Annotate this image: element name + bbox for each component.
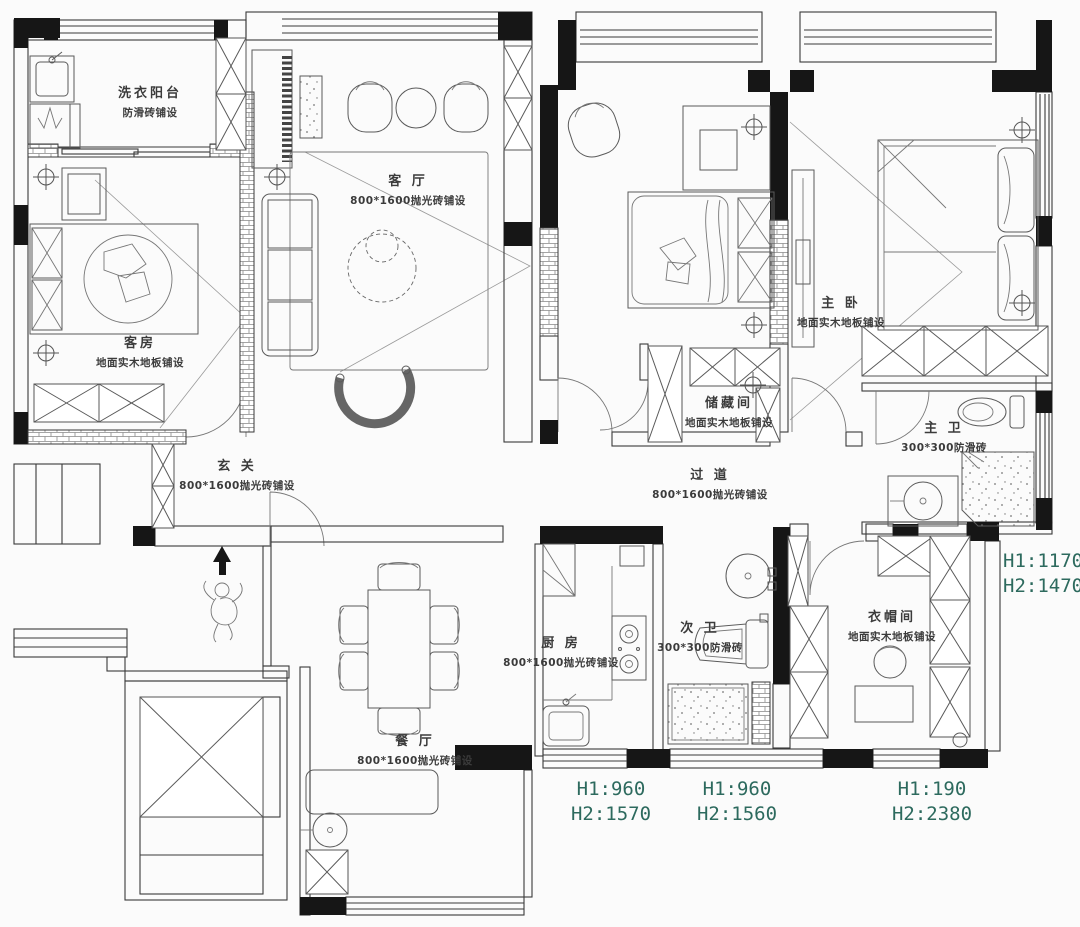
dim-line: H1:1170 — [1003, 549, 1080, 574]
room-name: 储藏间 — [685, 392, 773, 411]
label-master-bedroom: 主 卧 地面实木地板铺设 — [797, 292, 885, 330]
bedroom2-chair — [563, 97, 625, 162]
room-name: 衣帽间 — [848, 606, 936, 625]
bedroom2-bed — [628, 192, 774, 308]
room-spec: 地面实木地板铺设 — [848, 629, 936, 644]
north-arrow-icon — [213, 546, 231, 575]
dining-cabinet — [306, 850, 348, 894]
piano — [252, 50, 292, 168]
bedroom2-desk — [683, 106, 770, 190]
room-name: 玄 关 — [179, 455, 295, 474]
label-guest-room: 客房 地面实木地板铺设 — [96, 332, 184, 370]
master-vanity — [888, 476, 958, 526]
cloak-stool — [874, 646, 906, 678]
living-cabinet — [504, 46, 532, 150]
label-living-room: 客 厅 800*1600抛光砖铺设 — [350, 170, 466, 208]
room-name: 过 道 — [652, 464, 768, 483]
washing-machine — [30, 104, 80, 148]
room-name: 客 厅 — [350, 170, 466, 189]
person-figure-icon — [204, 581, 242, 642]
room-spec: 800*1600抛光砖铺设 — [179, 478, 295, 493]
lounge-chair — [336, 366, 411, 424]
room-spec: 300*300防滑砖 — [657, 640, 743, 655]
label-storage-room: 储藏间 地面实木地板铺设 — [685, 392, 773, 430]
dim-cloak-window: H1:190 H2:2380 — [892, 777, 972, 827]
coffee-table — [348, 230, 416, 302]
room-spec: 防滑砖铺设 — [118, 105, 182, 120]
room-spec: 800*1600抛光砖铺设 — [350, 193, 466, 208]
side-table — [396, 88, 436, 128]
room-spec: 地面实木地板铺设 — [797, 315, 885, 330]
dim-line: H1:190 — [892, 777, 972, 802]
kitchen-sink — [543, 694, 589, 746]
label-corridor: 过 道 800*1600抛光砖铺设 — [652, 464, 768, 502]
balcony-sink — [30, 52, 74, 102]
bath2-sink — [726, 554, 776, 598]
dim-line: H1:960 — [697, 777, 777, 802]
room-name: 次 卫 — [657, 617, 743, 636]
label-master-bathroom: 主 卫 300*300防滑砖 — [901, 417, 987, 455]
label-dining-room: 餐 厅 800*1600抛光砖铺设 — [357, 730, 473, 768]
master-wardrobe — [862, 326, 1048, 376]
dim-line: H2:1470 — [1003, 574, 1080, 599]
master-shower — [962, 452, 1034, 526]
room-spec: 地面实木地板铺设 — [685, 415, 773, 430]
guest-wardrobe — [34, 384, 164, 422]
sight-lines — [95, 122, 962, 428]
floor-plan: 洗衣阳台 防滑砖铺设 客 厅 800*1600抛光砖铺设 客房 地面实木地板铺设… — [0, 0, 1080, 927]
room-name: 厨 房 — [503, 632, 619, 651]
label-kitchen: 厨 房 800*1600抛光砖铺设 — [503, 632, 619, 670]
elevator-shaft — [140, 697, 263, 817]
balcony-cabinet — [216, 38, 246, 150]
dim-bath2-window: H1:960 H2:1560 — [697, 777, 777, 827]
room-spec: 300*300防滑砖 — [901, 440, 987, 455]
foyer-cabinet — [152, 444, 174, 528]
room-spec: 800*1600抛光砖铺设 — [503, 655, 619, 670]
room-name: 洗衣阳台 — [118, 82, 182, 101]
guest-bed — [30, 224, 198, 334]
label-cloakroom: 衣帽间 地面实木地板铺设 — [848, 606, 936, 644]
guest-nightstand — [62, 168, 106, 220]
dim-line: H2:1560 — [697, 802, 777, 827]
kitchen-wall-cabinet — [620, 546, 644, 566]
dim-line: H2:1570 — [571, 802, 651, 827]
room-spec: 800*1600抛光砖铺设 — [357, 753, 473, 768]
armchair-right — [444, 82, 488, 132]
armchair-left — [348, 82, 392, 132]
room-name: 主 卫 — [901, 417, 987, 436]
bar-counter — [306, 770, 438, 814]
water-basin — [300, 813, 347, 847]
label-laundry-balcony: 洗衣阳台 防滑砖铺设 — [118, 82, 182, 120]
label-foyer: 玄 关 800*1600抛光砖铺设 — [179, 455, 295, 493]
room-spec: 地面实木地板铺设 — [96, 355, 184, 370]
dim-line: H2:2380 — [892, 802, 972, 827]
room-name: 餐 厅 — [357, 730, 473, 749]
cloak-desk — [855, 686, 913, 722]
piano-bench — [300, 76, 322, 138]
dim-right-window: H1:1170 H2:1470 — [1003, 549, 1080, 599]
room-spec: 800*1600抛光砖铺设 — [652, 487, 768, 502]
dim-line: H1:960 — [571, 777, 651, 802]
dining-table — [339, 562, 460, 735]
bath2-shower — [668, 684, 748, 744]
dim-kitchen-window: H1:960 H2:1570 — [571, 777, 651, 827]
room-name: 主 卧 — [797, 292, 885, 311]
label-second-bathroom: 次 卫 300*300防滑砖 — [657, 617, 743, 655]
room-name: 客房 — [96, 332, 184, 351]
kitchen-corner-cabinet — [543, 544, 575, 596]
